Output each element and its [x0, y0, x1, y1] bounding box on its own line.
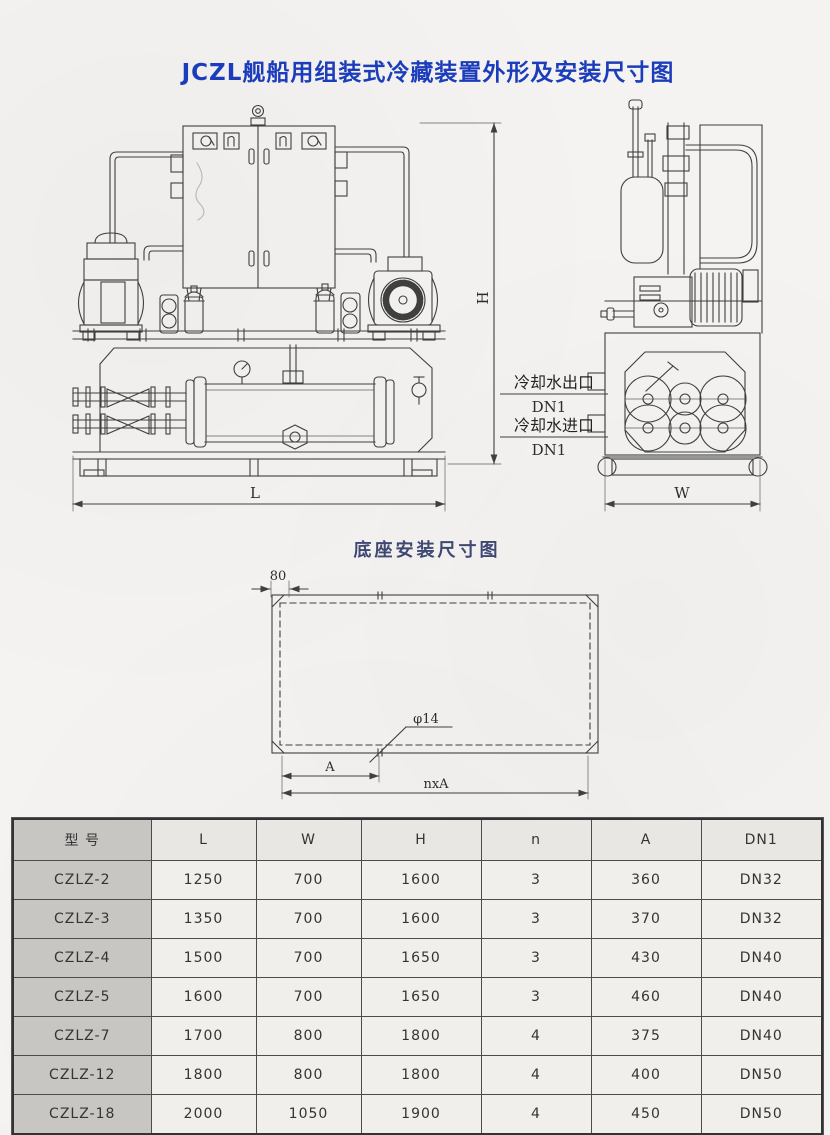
indicator-box	[224, 133, 239, 149]
model-cell: CZLZ-3	[13, 900, 151, 939]
valve-column	[663, 123, 689, 274]
value-cell: 3	[481, 939, 591, 978]
value-cell: 460	[591, 978, 701, 1017]
hole-dia-label: φ14	[413, 712, 439, 727]
valve-symbol	[107, 416, 128, 434]
value-cell: 1600	[361, 861, 481, 900]
value-cell: 3	[481, 978, 591, 1017]
strainer-vessels	[160, 284, 360, 333]
value-cell: 3	[481, 861, 591, 900]
table-row: CZLZ-2125070016003360DN32	[13, 861, 822, 900]
value-cell: 4	[481, 1017, 591, 1056]
indicator-box	[302, 133, 326, 149]
base-diagram-title: 底座安装尺寸图	[0, 536, 830, 562]
value-cell: 375	[591, 1017, 701, 1056]
value-cell: 1650	[361, 939, 481, 978]
right-compressor	[368, 257, 440, 340]
model-cell: CZLZ-4	[13, 939, 151, 978]
table-row: CZLZ-3135070016003370DN32	[13, 900, 822, 939]
cooling-water-inlet-label: 冷却水进口	[514, 416, 594, 435]
spec-table-header-row: 型 号LWHnADN1	[13, 819, 822, 861]
value-cell: DN32	[701, 861, 822, 900]
cooling-water-outlet-size: DN1	[532, 398, 567, 416]
table-row: CZLZ-5160070016503460DN40	[13, 978, 822, 1017]
value-cell: 450	[591, 1095, 701, 1135]
spec-table-header-cell: DN1	[701, 819, 822, 861]
value-cell: 1800	[361, 1056, 481, 1095]
spec-table: 型 号LWHnADN1 CZLZ-2125070016003360DN32CZL…	[12, 818, 823, 1135]
dimension-label-w: W	[674, 484, 690, 502]
table-row: CZLZ-12180080018004400DN50	[13, 1056, 822, 1095]
value-cell: 700	[256, 861, 361, 900]
spec-table-header-cell: n	[481, 819, 591, 861]
table-row: CZLZ-7170080018004375DN40	[13, 1017, 822, 1056]
value-cell: 430	[591, 939, 701, 978]
cooling-water-inlet-size: DN1	[532, 441, 567, 459]
control-cabinet	[171, 106, 347, 302]
value-cell: 370	[591, 900, 701, 939]
value-cell: 4	[481, 1056, 591, 1095]
value-cell: DN50	[701, 1095, 822, 1135]
valve-symbol	[128, 416, 149, 434]
left-compressor	[79, 233, 144, 340]
catalog-page: JCZL舰船用组装式冷藏装置外形及安装尺寸图	[0, 0, 830, 1125]
value-cell: 1800	[151, 1056, 256, 1095]
dimension-label-l: L	[250, 484, 260, 502]
model-cell: CZLZ-12	[13, 1056, 151, 1095]
base-outline	[272, 595, 598, 753]
value-cell: 4	[481, 1095, 591, 1135]
spec-table-header-cell: L	[151, 819, 256, 861]
condenser-end-view	[588, 333, 767, 476]
refrigerant-piping	[110, 147, 409, 262]
discharge-pipe-loop	[686, 145, 757, 263]
value-cell: DN50	[701, 1056, 822, 1095]
spec-table-header-cell: 型 号	[13, 819, 151, 861]
value-cell: 1900	[361, 1095, 481, 1135]
cooling-water-callouts: 冷却水出口 DN1 冷却水进口 DN1	[500, 373, 608, 459]
value-cell: 1350	[151, 900, 256, 939]
value-cell: 700	[256, 978, 361, 1017]
value-cell: 1600	[151, 978, 256, 1017]
table-row: CZLZ-182000105019004450DN50	[13, 1095, 822, 1135]
compressor-side	[601, 269, 758, 327]
table-row: CZLZ-4150070016503430DN40	[13, 939, 822, 978]
value-cell: 2000	[151, 1095, 256, 1135]
spec-table-header-cell: A	[591, 819, 701, 861]
value-cell: DN32	[701, 900, 822, 939]
motor-fins	[690, 269, 742, 326]
value-cell: 1800	[361, 1017, 481, 1056]
value-cell: DN40	[701, 939, 822, 978]
side-view-drawing	[588, 100, 767, 511]
valve-symbol	[128, 389, 149, 407]
dimension-label-h: H	[474, 291, 492, 304]
lifting-eyebolt	[251, 106, 265, 126]
value-cell: 400	[591, 1056, 701, 1095]
technical-drawing-canvas: 冷却水出口 DN1 冷却水进口 DN1 L H W	[0, 0, 830, 820]
value-cell: 800	[256, 1017, 361, 1056]
indicator-box	[193, 133, 217, 149]
value-cell: 1650	[361, 978, 481, 1017]
model-cell: CZLZ-18	[13, 1095, 151, 1135]
base-mounting-diagram	[252, 581, 598, 799]
value-cell: 1500	[151, 939, 256, 978]
spec-table-body: CZLZ-2125070016003360DN32CZLZ-3135070016…	[13, 861, 822, 1135]
model-cell: CZLZ-7	[13, 1017, 151, 1056]
value-cell: 1050	[256, 1095, 361, 1135]
model-cell: CZLZ-5	[13, 978, 151, 1017]
pitch-dim-label: A	[324, 760, 335, 775]
spec-table-header-cell: W	[256, 819, 361, 861]
indicator-box	[276, 133, 291, 149]
value-cell: DN40	[701, 1017, 822, 1056]
value-cell: 1250	[151, 861, 256, 900]
value-cell: 1700	[151, 1017, 256, 1056]
value-cell: DN40	[701, 978, 822, 1017]
value-cell: 800	[256, 1056, 361, 1095]
base-frame	[73, 329, 445, 476]
valve-symbol	[107, 389, 128, 407]
spec-table-header-cell: H	[361, 819, 481, 861]
value-cell: 3	[481, 900, 591, 939]
front-view-drawing	[73, 106, 501, 512]
accumulator-tank	[621, 100, 663, 263]
total-pitch-dim-label: nxA	[423, 777, 449, 792]
condenser	[73, 345, 426, 449]
model-cell: CZLZ-2	[13, 861, 151, 900]
value-cell: 700	[256, 939, 361, 978]
value-cell: 1600	[361, 900, 481, 939]
value-cell: 360	[591, 861, 701, 900]
cooling-water-outlet-label: 冷却水出口	[514, 373, 594, 392]
value-cell: 700	[256, 900, 361, 939]
edge-dim-label: 80	[270, 569, 287, 584]
